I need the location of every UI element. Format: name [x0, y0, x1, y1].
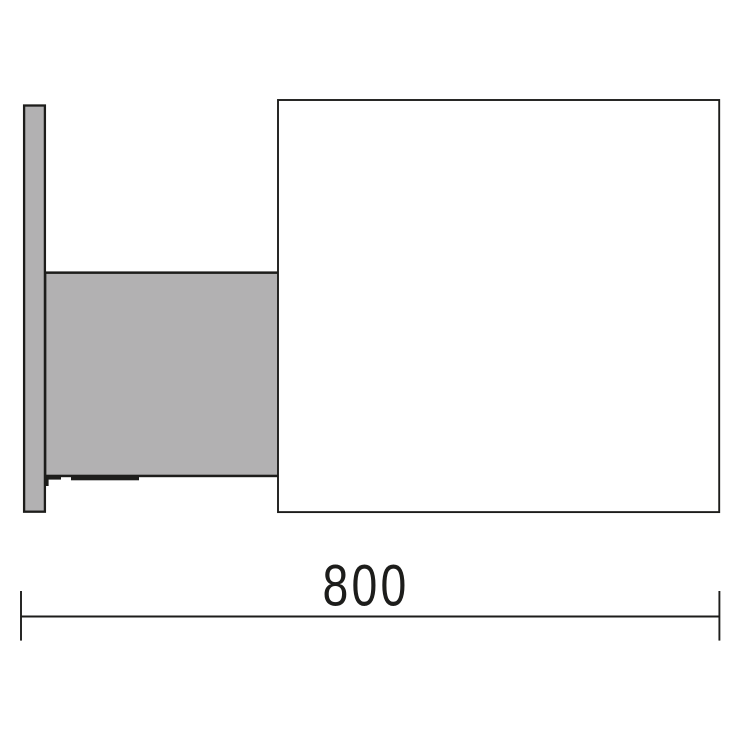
svg-text:800: 800 [322, 553, 409, 618]
